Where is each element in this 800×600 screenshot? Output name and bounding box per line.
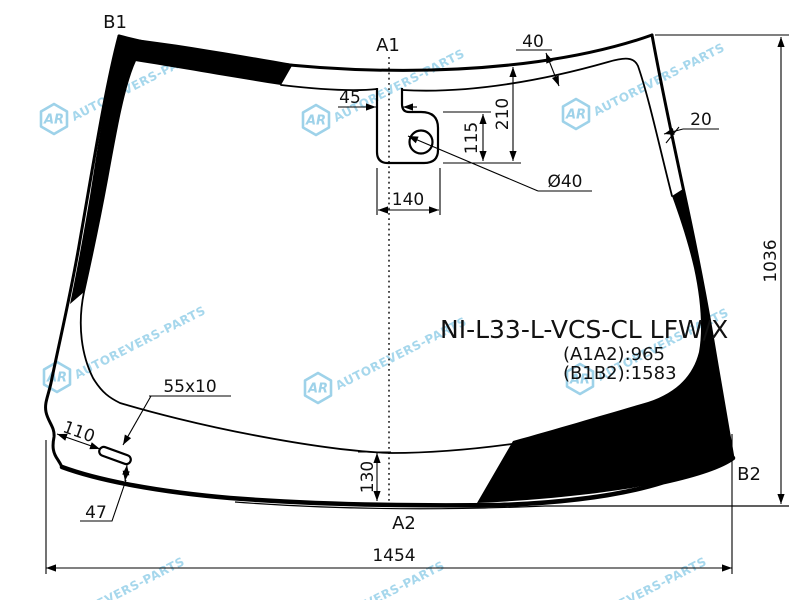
brand-watermark: AR AUTOREVERS-PARTS	[545, 554, 709, 600]
brand-watermark: AR AUTOREVERS-PARTS	[23, 554, 187, 600]
ref-point-b2: B2	[737, 464, 761, 485]
windshield-technical-drawing: AR AUTOREVERS-PARTS AR AUTOREVERS-PARTS …	[0, 0, 800, 600]
dim-strip-offset: 110	[60, 417, 97, 447]
brand-watermark-text: AUTOREVERS-PARTS	[331, 46, 467, 124]
frit-line-top-left	[281, 85, 377, 90]
dim-strip-size: 55x10	[163, 377, 216, 397]
frit-line-top-right	[402, 59, 672, 196]
ref-point-b1: B1	[103, 12, 127, 33]
ar-logo-text: AR	[43, 113, 64, 128]
brand-watermark-text: AUTOREVERS-PARTS	[51, 554, 187, 600]
ar-logo-text: AR	[46, 371, 67, 386]
dim-top-band-width: 40	[522, 32, 544, 52]
dim-strip-edge-gap: 47	[85, 503, 107, 523]
ref-point-a1: A1	[376, 35, 400, 56]
dim-glass-width: 1454	[372, 546, 415, 566]
mounting-strip	[98, 446, 132, 466]
frit-line-left	[81, 61, 512, 453]
frit-band-top-left	[70, 37, 293, 304]
dim-camera-total-height: 210	[493, 98, 513, 130]
dim-circle-diameter: Ø40	[547, 172, 582, 192]
ar-logo-text: AR	[565, 108, 586, 123]
dim-glass-height: 1036	[761, 239, 781, 282]
brand-watermark: AR AUTOREVERS-PARTS	[283, 558, 447, 600]
ref-point-a2: A2	[392, 513, 416, 534]
ar-logo-text: AR	[305, 114, 326, 129]
labels: B1 A1 A2 B2 45 140 40 20 Ø40 55x10 47 14…	[60, 12, 781, 566]
dimension-lines	[46, 35, 789, 574]
drawing-canvas: AR AUTOREVERS-PARTS AR AUTOREVERS-PARTS …	[0, 0, 800, 600]
part-number: NI-L33-L-VCS-CL LFW/X	[440, 315, 728, 344]
brand-watermark-text: AUTOREVERS-PARTS	[72, 303, 208, 381]
dim-notch-width: 45	[339, 88, 361, 108]
distance-a1a2: (A1A2):965	[563, 344, 665, 365]
dim-camera-height: 115	[462, 122, 482, 154]
ar-logo-text: AR	[307, 382, 328, 397]
distance-b1b2: (B1B2):1583	[563, 363, 677, 384]
dim-camera-width: 140	[392, 190, 424, 210]
dim-bottom-band-height: 130	[358, 461, 378, 493]
dim-side-band-width: 20	[690, 110, 712, 130]
brand-watermark-text: AUTOREVERS-PARTS	[573, 554, 709, 600]
